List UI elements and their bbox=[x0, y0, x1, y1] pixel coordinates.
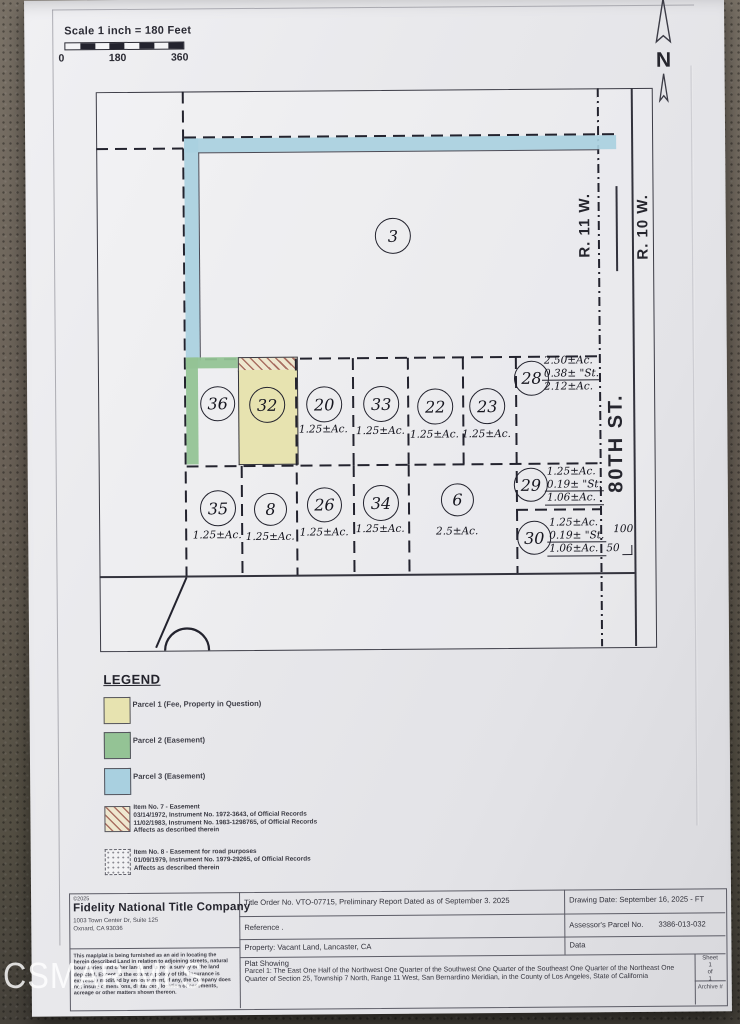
data-label: Data bbox=[569, 940, 585, 949]
parcel3-inner-border bbox=[198, 149, 601, 360]
parcel-8-number: 8 bbox=[254, 493, 287, 526]
street-dimension-100: 100 bbox=[613, 523, 633, 535]
legend-label-parcel2: Parcel 2 (Easement) bbox=[133, 735, 205, 745]
parcel-28-street: 0.38± "St. bbox=[542, 367, 601, 381]
sheet-edge-left bbox=[52, 10, 60, 946]
legend-item7-line4: Affects as described therein bbox=[134, 826, 318, 835]
legend-swatch-parcel2 bbox=[104, 732, 131, 759]
scale-tick-360: 360 bbox=[171, 51, 189, 63]
parcel-22-number: 22 bbox=[417, 388, 453, 424]
range-right-label: R. 10 W. bbox=[634, 194, 652, 260]
parcel-34-number: 34 bbox=[363, 485, 399, 521]
plat-showing-label: Plat Showing bbox=[245, 959, 289, 968]
legend-swatch-parcel3 bbox=[104, 768, 131, 795]
road-and-arc-linework bbox=[128, 569, 249, 655]
parcel-20-acreage: 1.25±Ac. bbox=[299, 423, 348, 435]
reference: Reference . bbox=[244, 923, 283, 932]
parcel-29-street: 0.19± "St. bbox=[545, 478, 604, 492]
parcel-30-gross: 1.25±Ac. bbox=[547, 516, 606, 529]
sheet-cell: Sheet 1 of 1 bbox=[695, 955, 726, 983]
legal-description: Parcel 1: The East One Half of the North… bbox=[245, 965, 687, 985]
parcel-33-acreage: 1.25±Ac. bbox=[356, 425, 405, 437]
parcel-8-acreage: 1.25±Ac. bbox=[246, 531, 295, 543]
company-name: Fidelity National Title Company bbox=[73, 901, 250, 914]
parcel-26-acreage: 1.25±Ac. bbox=[300, 526, 349, 538]
legend-swatch-item8 bbox=[105, 849, 131, 875]
dimension-bracket bbox=[622, 545, 632, 555]
legend-swatch-item7 bbox=[104, 806, 130, 832]
photo-of-plat-document: Scale 1 inch = 180 Feet 0 180 360 N R. 1… bbox=[0, 0, 740, 1024]
scale-tick-180: 180 bbox=[109, 52, 127, 64]
parcel-29-number: 29 bbox=[514, 468, 548, 502]
parcel-6-acreage: 2.5±Ac. bbox=[436, 525, 478, 537]
street-label: 80TH ST. bbox=[605, 393, 629, 493]
parcel-29-net: 1.06±Ac. bbox=[545, 491, 604, 505]
parcel-29-acreage-calc: 1.25±Ac. 0.19± "St. 1.06±Ac. bbox=[545, 465, 604, 505]
parcel-35-number: 35 bbox=[200, 490, 236, 526]
legend-swatch-parcel1 bbox=[103, 697, 130, 724]
company-address-2: Oxnard, CA 93036 bbox=[73, 926, 122, 932]
parcel-35-acreage: 1.25±Ac. bbox=[193, 529, 242, 541]
apn-row: Assessor's Parcel No. 3386-013-032 bbox=[569, 919, 706, 929]
street-dimension-50: 50 bbox=[606, 542, 619, 554]
legend-item8-text: Item No. 8 - Easement for road purposes … bbox=[134, 848, 311, 873]
parcel-30-street: 0.19± "St. bbox=[547, 529, 606, 543]
parcel-28-gross: 2.50±Ac. bbox=[542, 354, 601, 367]
archive-label: Archive # bbox=[698, 984, 723, 990]
legend-item8-line2: 01/09/1979, Instrument No. 1979-29265, o… bbox=[134, 855, 311, 864]
legend-item8-line3: Affects as described therein bbox=[134, 863, 311, 872]
parcel-23-acreage: 1.25±Ac. bbox=[462, 428, 511, 440]
legend-label-parcel1: Parcel 1 (Fee, Property in Question) bbox=[133, 699, 262, 709]
company-address-1: 1003 Town Center Dr, Suite 125 bbox=[73, 918, 158, 925]
apn-label: Assessor's Parcel No. bbox=[569, 920, 643, 930]
parcel-30-acreage-calc: 1.25±Ac. 0.19± "St. 1.06±Ac. bbox=[547, 516, 606, 556]
parcel-33-number: 33 bbox=[363, 386, 399, 422]
plat-sheet: Scale 1 inch = 180 Feet 0 180 360 N R. 1… bbox=[24, 0, 732, 1017]
north-arrow-icon bbox=[646, 0, 680, 50]
apn-value: 3386-013-032 bbox=[658, 919, 705, 928]
parcel-22-acreage: 1.25±Ac. bbox=[410, 428, 459, 440]
scale-ticks: 0 180 360 bbox=[58, 51, 188, 64]
drawing-date: Drawing Date: September 16, 2025 - FT bbox=[569, 894, 704, 904]
parcel-28-acreage-calc: 2.50±Ac. 0.38± "St. 2.12±Ac. bbox=[542, 354, 601, 393]
parcel2-easement-band-left bbox=[186, 357, 199, 464]
parcel-6-number: 6 bbox=[441, 483, 474, 516]
parcel-36-number: 36 bbox=[200, 386, 235, 421]
scale-label: Scale 1 inch = 180 Feet bbox=[64, 24, 191, 37]
parcel-28-net: 2.12±Ac. bbox=[542, 380, 601, 393]
legend-item7-text: Item No. 7 - Easement 03/14/1972, Instru… bbox=[133, 802, 317, 835]
paper-crease bbox=[691, 66, 699, 826]
parcel-29-gross: 1.25±Ac. bbox=[545, 465, 604, 478]
parcel-32-number: 32 bbox=[249, 387, 285, 423]
parcel-20-number: 20 bbox=[306, 386, 342, 422]
property: Property: Vacant Land, Lancaster, CA bbox=[244, 942, 371, 952]
north-label: N bbox=[646, 49, 680, 73]
parcel-23-number: 23 bbox=[469, 388, 505, 424]
parcel-34-acreage: 1.25±Ac. bbox=[356, 523, 405, 535]
parcel-26-number: 26 bbox=[307, 487, 342, 522]
scale-tick-0: 0 bbox=[58, 52, 64, 64]
parcel-30-net: 1.06±Ac. bbox=[547, 542, 606, 556]
legend-label-parcel3: Parcel 3 (Easement) bbox=[133, 771, 205, 781]
sheet-edge-top bbox=[52, 4, 694, 10]
mls-watermark: CSMAR MLS bbox=[3, 955, 204, 997]
sheet-total: 1 bbox=[695, 976, 726, 983]
parcel-3-number: 3 bbox=[375, 218, 411, 254]
scale-bar bbox=[64, 41, 184, 50]
legend-title: LEGEND bbox=[103, 672, 160, 687]
